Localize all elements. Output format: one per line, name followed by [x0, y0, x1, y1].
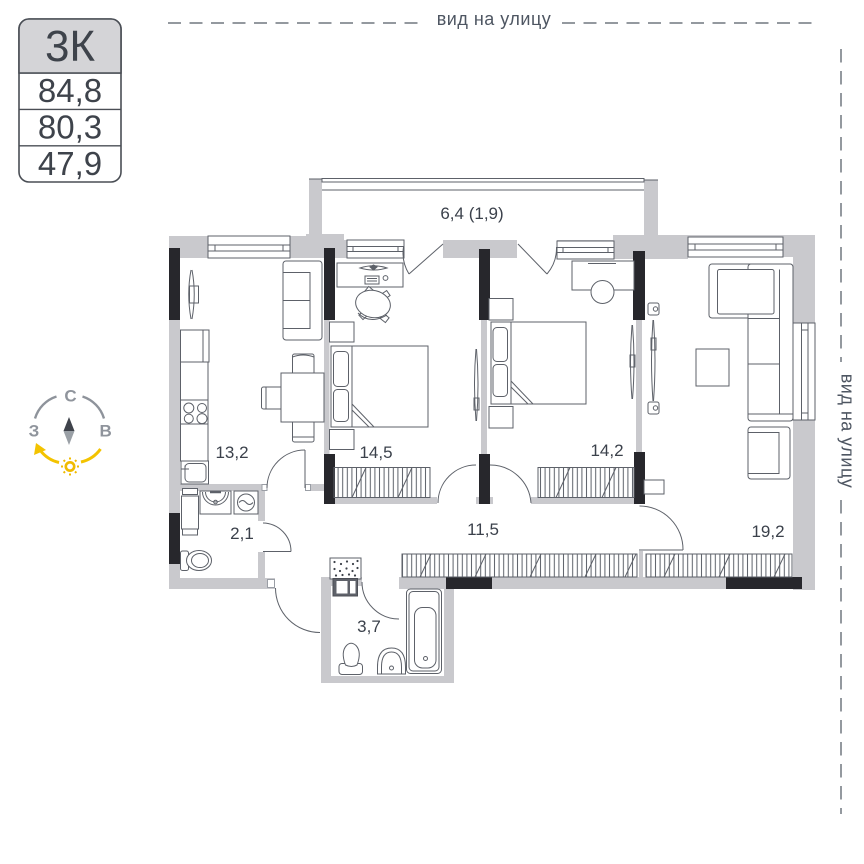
svg-text:6,4 (1,9): 6,4 (1,9) — [440, 204, 503, 223]
svg-text:11,5: 11,5 — [467, 520, 499, 539]
svg-text:84,8: 84,8 — [38, 72, 102, 109]
svg-text:19,2: 19,2 — [751, 522, 784, 541]
svg-text:3К: 3К — [45, 22, 95, 71]
svg-text:вид на улицу: вид на улицу — [437, 9, 552, 29]
svg-text:3,7: 3,7 — [357, 617, 381, 636]
svg-text:С: С — [64, 387, 76, 406]
svg-text:14,5: 14,5 — [359, 443, 392, 462]
svg-text:2,1: 2,1 — [230, 524, 254, 543]
svg-text:47,9: 47,9 — [38, 145, 102, 182]
svg-text:13,2: 13,2 — [215, 443, 248, 462]
svg-text:В: В — [99, 422, 111, 441]
svg-text:14,2: 14,2 — [590, 441, 623, 460]
svg-text:80,3: 80,3 — [38, 109, 102, 146]
svg-text:вид на улицу: вид на улицу — [838, 374, 858, 489]
svg-text:З: З — [29, 422, 40, 441]
